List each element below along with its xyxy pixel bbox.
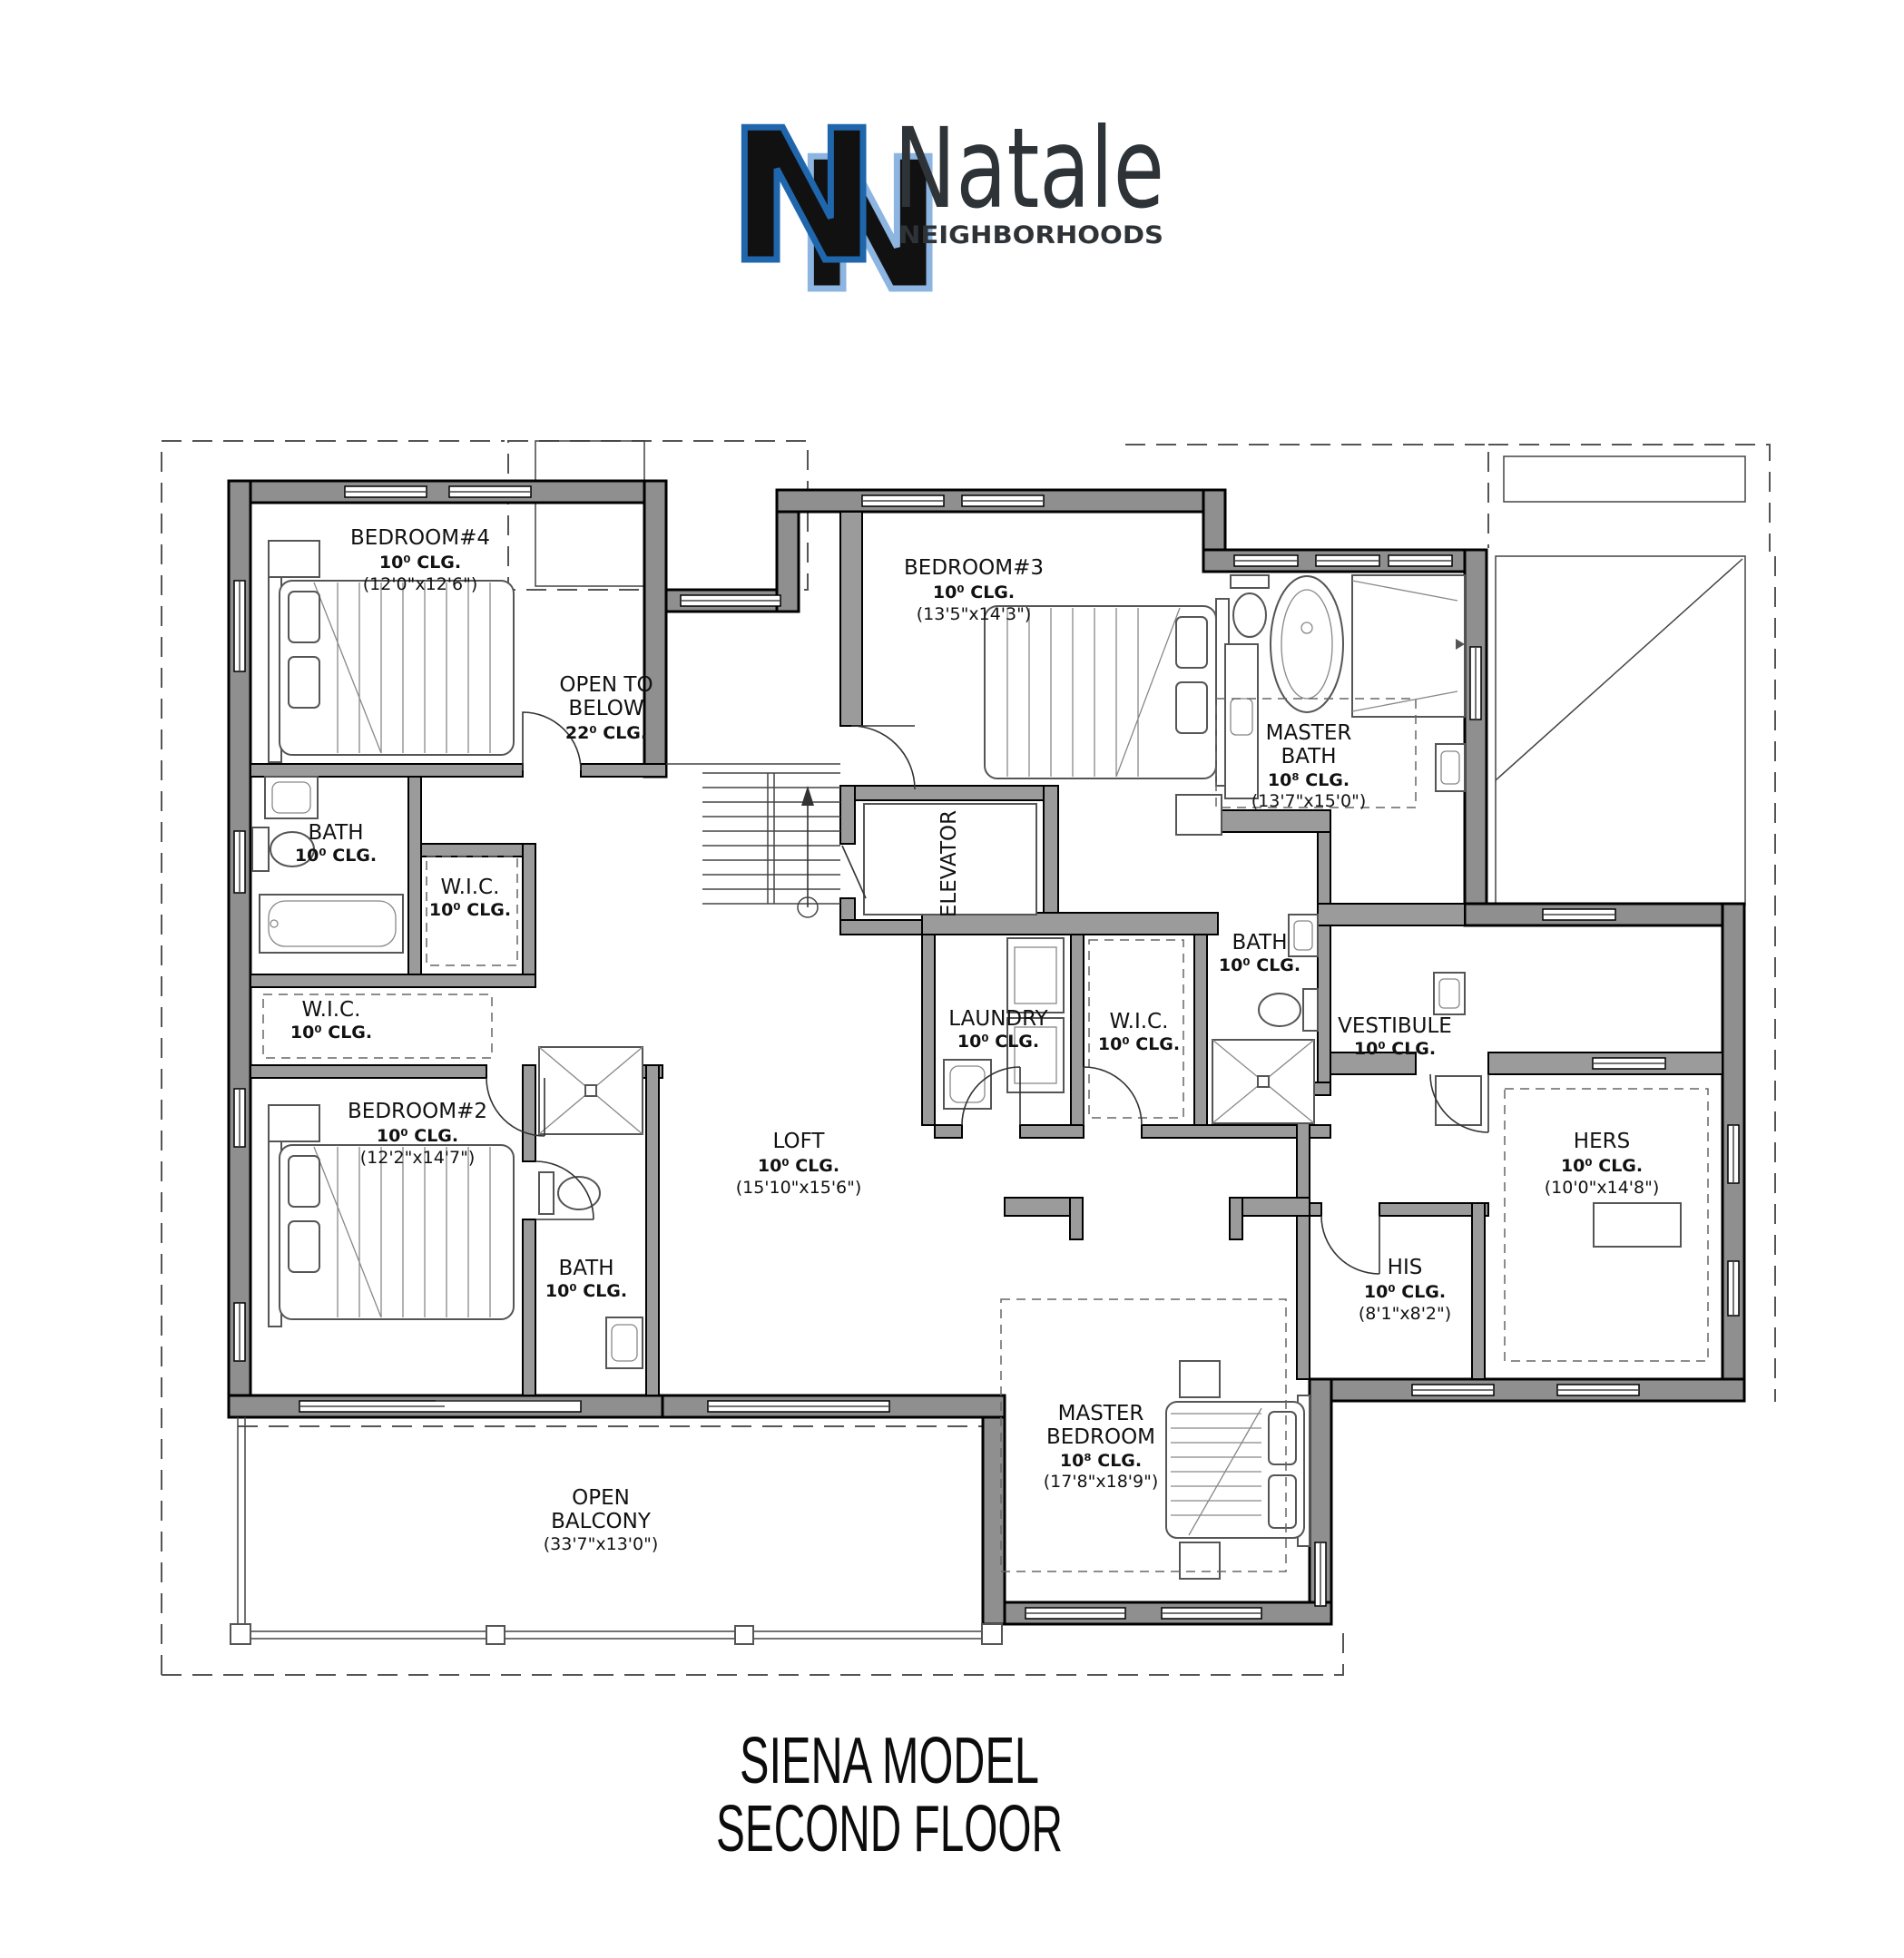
window (1026, 1608, 1125, 1619)
roof-solid-top-right (1504, 456, 1745, 502)
window (1728, 1261, 1739, 1316)
room-name: BEDROOM#2 (348, 1100, 487, 1123)
title-line-1: SIENA MODEL (740, 1725, 1039, 1797)
room-ceiling: 10⁰ CLG. (379, 553, 461, 573)
room-name: HERS (1574, 1130, 1630, 1153)
room-name: BATH (1232, 931, 1287, 955)
roof-hip-diagonal (1496, 559, 1742, 780)
wall-segment (1297, 1203, 1310, 1379)
room-label-wic-right: W.I.C. 10⁰ CLG. (1098, 1010, 1180, 1054)
stair-up-arrow-icon (801, 786, 814, 806)
room-label-his: HIS 10⁰ CLG. (8'1"x8'2") (1359, 1256, 1451, 1324)
window (234, 581, 245, 671)
room-dims: (13'5"x14'3") (917, 604, 1032, 624)
room-label-open-to-below: OPEN TO BELOW 22⁰ CLG. (559, 673, 653, 743)
bathtub (260, 895, 403, 953)
room-ceiling: 10⁰ CLG. (1354, 1039, 1436, 1059)
room-ceiling: 10⁰ CLG. (1561, 1156, 1643, 1176)
wall-segment (1230, 1198, 1242, 1239)
room-name: MASTER (1058, 1402, 1144, 1425)
bed (1166, 1361, 1310, 1579)
room-dims: (12'0"x12'6") (363, 574, 478, 594)
room-name: W.I.C. (441, 876, 500, 899)
window (1557, 1385, 1639, 1395)
sliding-door (299, 1401, 581, 1412)
room-name: BEDROOM#4 (350, 526, 490, 550)
wall-segment (935, 1125, 962, 1138)
room-ceiling: 10⁰ CLG. (295, 846, 377, 866)
wall-segment (646, 1065, 659, 1395)
wall-segment (840, 786, 1058, 800)
room-ceiling: 10⁰ CLG. (377, 1126, 458, 1146)
door-arc (1321, 1216, 1379, 1274)
window (1315, 1542, 1326, 1606)
logo-brand-text: Natale (894, 104, 1164, 233)
room-name: LAUNDRY (948, 1007, 1048, 1031)
room-name: W.I.C. (302, 998, 361, 1022)
room-label-vestibule: VESTIBULE 10⁰ CLG. (1338, 1014, 1452, 1059)
room-label-loft: LOFT 10⁰ CLG. (15'10"x15'6") (736, 1130, 862, 1198)
room-name: BATH (308, 821, 363, 845)
room-name: OPEN TO (559, 673, 653, 697)
room-name: LOFT (773, 1130, 826, 1153)
room-name: BEDROOM#3 (904, 556, 1044, 580)
room-dims: (10'0"x14'8") (1545, 1178, 1660, 1198)
wall-segment (1472, 1203, 1485, 1379)
toilet (1231, 575, 1269, 637)
room-ceiling: 10⁸ CLG. (1060, 1451, 1142, 1471)
floor-plan-drawing: N N Natale NEIGHBORHOODS (0, 0, 1904, 1958)
wall-segment (1318, 904, 1465, 925)
wall-segment (1310, 1203, 1321, 1216)
wall-segment (1318, 810, 1330, 1082)
window (1389, 555, 1452, 566)
window (234, 1089, 245, 1147)
room-dims: (17'8"x18'9") (1044, 1472, 1159, 1492)
room-label-bedroom3: BEDROOM#3 10⁰ CLG. (13'5"x14'3") (904, 556, 1044, 624)
sink (1436, 744, 1465, 791)
wall-segment (250, 1065, 486, 1078)
title-line-2: SECOND FLOOR (716, 1793, 1063, 1865)
logo-subbrand-text: NEIGHBORHOODS (898, 221, 1163, 250)
room-ceiling: 10⁰ CLG. (957, 1032, 1039, 1052)
room-label-wic-left: W.I.C. 10⁰ CLG. (290, 998, 372, 1043)
room-name: OPEN (572, 1486, 630, 1510)
toilet (539, 1172, 600, 1214)
wall-segment (922, 935, 935, 1125)
wall-segment (250, 974, 535, 987)
room-dims: (33'7"x13'0") (544, 1534, 659, 1554)
window (1162, 1608, 1261, 1619)
logo-monogram-front-n-icon: N (728, 92, 879, 303)
stair-treads (702, 773, 840, 904)
cabinet (1436, 1076, 1481, 1125)
window (681, 595, 780, 606)
room-label-bedroom2: BEDROOM#2 10⁰ CLG. (12'2"x14'7") (348, 1100, 487, 1168)
window (1234, 555, 1298, 566)
sink (1289, 915, 1318, 956)
room-label-open-balcony: OPEN BALCONY (33'7"x13'0") (544, 1486, 659, 1554)
wall-segment (1207, 810, 1330, 832)
door-arc (1084, 1067, 1142, 1125)
sink (606, 1317, 643, 1368)
room-name: BATH (558, 1257, 613, 1280)
room-name: BATH (1281, 745, 1336, 769)
window (1543, 909, 1615, 920)
room-name: BELOW (568, 697, 643, 720)
roof-plane-right (1496, 556, 1745, 905)
room-label-elevator: ELEVATOR (937, 810, 961, 917)
room-label-wic-mid: W.I.C. 10⁰ CLG. (429, 876, 511, 920)
window (1412, 1385, 1494, 1395)
wall-segment (250, 764, 523, 777)
wall-segment (1070, 1198, 1083, 1239)
wall-segment (421, 844, 523, 857)
window (1470, 647, 1481, 720)
wall-segment (644, 481, 666, 777)
window (1593, 1058, 1665, 1069)
roof-dashed-top-far-right (1488, 445, 1770, 552)
window (1316, 555, 1379, 566)
vanity-sink (1225, 644, 1258, 798)
roof-solid-top-center (535, 441, 644, 586)
room-label-master-bedroom: MASTER BEDROOM 10⁸ CLG. (17'8"x18'9") (1044, 1402, 1159, 1492)
wall-segment (840, 512, 862, 726)
window (449, 486, 531, 497)
wall-segment (983, 1415, 1005, 1624)
staircase (666, 764, 840, 917)
wall-segment (1071, 935, 1084, 1125)
stair-rail (768, 773, 774, 904)
window (345, 486, 427, 497)
wall-segment (408, 777, 421, 987)
room-ceiling: 10⁰ CLG. (290, 1023, 372, 1043)
window (1728, 1125, 1739, 1183)
freestanding-tub (1271, 576, 1343, 712)
room-name: W.I.C. (1110, 1010, 1169, 1033)
wall-segment (840, 786, 855, 844)
room-dims: (13'7"x15'0") (1251, 791, 1367, 811)
sink (1434, 973, 1465, 1014)
room-ceiling: 10⁰ CLG. (429, 900, 511, 920)
window (234, 1303, 245, 1361)
floor-plan-page: N N Natale NEIGHBORHOODS (0, 0, 1904, 1958)
sink (265, 777, 318, 818)
room-label-master-bath: MASTER BATH 10⁸ CLG. (13'7"x15'0") (1251, 721, 1367, 811)
room-ceiling: 10⁰ CLG. (1364, 1282, 1446, 1302)
railing-post (231, 1624, 250, 1644)
room-name: BEDROOM (1046, 1425, 1155, 1449)
room-dims: (15'10"x15'6") (736, 1178, 862, 1198)
shower (1352, 575, 1465, 717)
wall-segment (523, 844, 535, 987)
room-label-hers: HERS 10⁰ CLG. (10'0"x14'8") (1545, 1130, 1660, 1198)
wall-segment (1194, 935, 1207, 1125)
room-ceiling: 10⁰ CLG. (545, 1281, 627, 1301)
room-name: MASTER (1266, 721, 1352, 745)
wall-segment (523, 1219, 535, 1395)
elevator-door (842, 846, 866, 898)
shower (1212, 1040, 1314, 1123)
window (862, 495, 944, 506)
wall-segment (1465, 550, 1487, 925)
washer (1007, 938, 1064, 1013)
railing-post (735, 1626, 753, 1644)
wall-segment (523, 1065, 535, 1161)
logo: N N Natale NEIGHBORHOODS (728, 92, 1164, 332)
wall-segment (1330, 1379, 1744, 1401)
room-name: VESTIBULE (1338, 1014, 1452, 1038)
room-label-bath-center: BATH 10⁰ CLG. (545, 1257, 627, 1301)
window (234, 831, 245, 893)
room-ceiling: 10⁰ CLG. (758, 1156, 839, 1176)
wall-segment (581, 764, 666, 777)
wall-segment (229, 481, 666, 503)
room-name: BALCONY (551, 1510, 652, 1533)
window (962, 495, 1044, 506)
room-ceiling: 10⁰ CLG. (933, 583, 1015, 602)
room-label-bedroom4: BEDROOM#4 10⁰ CLG. (12'0"x12'6") (350, 526, 490, 594)
door-arc (851, 726, 915, 789)
room-ceiling: 10⁸ CLG. (1268, 770, 1349, 790)
room-name: HIS (1388, 1256, 1423, 1279)
railing-post (486, 1626, 505, 1644)
room-dims: (8'1"x8'2") (1359, 1304, 1451, 1324)
toilet (1259, 989, 1318, 1031)
wall-segment (1020, 1125, 1084, 1138)
window (708, 1401, 889, 1412)
shower (539, 1047, 643, 1134)
room-dims: (12'2"x14'7") (360, 1148, 476, 1168)
wall-segment (922, 913, 1218, 935)
room-ceiling: 22⁰ CLG. (565, 723, 647, 743)
room-label-laundry: LAUNDRY 10⁰ CLG. (948, 1007, 1048, 1052)
drawing-title: SIENA MODEL SECOND FLOOR (716, 1725, 1063, 1865)
room-ceiling: 10⁰ CLG. (1098, 1034, 1180, 1054)
room-ceiling: 10⁰ CLG. (1219, 955, 1300, 975)
railing-post (982, 1624, 1002, 1644)
